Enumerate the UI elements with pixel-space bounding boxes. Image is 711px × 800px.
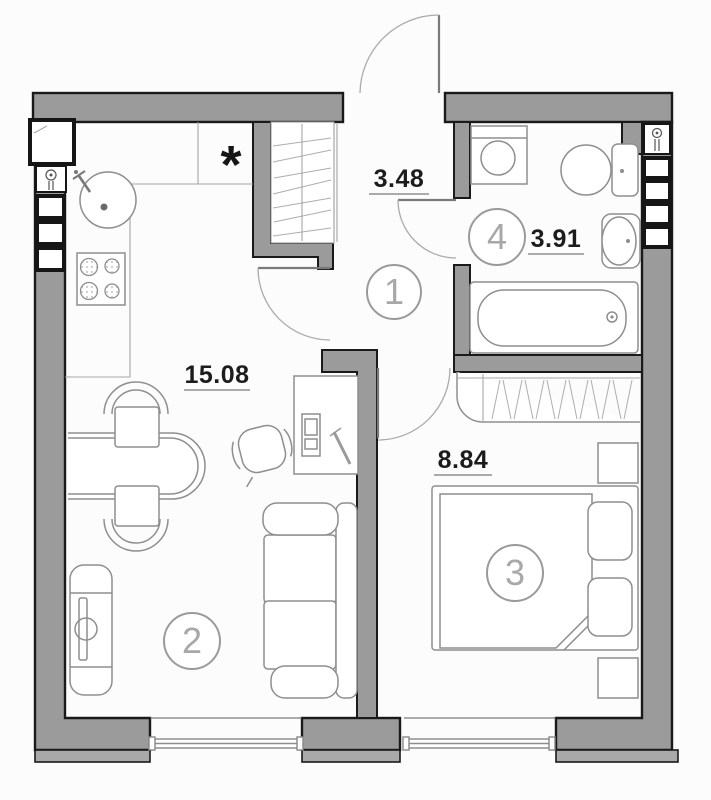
wall-sill-right (556, 750, 678, 762)
dining-chair-bottom-seat (115, 486, 159, 526)
bathroom-area-label: 3.91 (531, 225, 582, 253)
vent-shaft-right-1 (644, 158, 670, 178)
sofa-cushion-2 (264, 601, 336, 669)
window-right-cap-b (549, 737, 555, 750)
wall-bottom-center (302, 718, 400, 750)
vent-shaft-left-2 (37, 222, 64, 244)
floor-plan: * (0, 0, 711, 800)
stove-burner-1 (81, 259, 98, 276)
window-left-cap-b (297, 737, 303, 750)
kitchen-faucet-dot (74, 170, 78, 174)
tv-stand-icon (70, 565, 112, 695)
sofa-backrest (336, 503, 357, 698)
dining-chair-top-seat (115, 407, 159, 447)
sofa-cushion-1 (264, 535, 336, 603)
sofa-icon (263, 503, 357, 698)
vent-valve-right-dot (656, 132, 659, 135)
vent-box-large-icon (30, 120, 74, 164)
kitchen-sink-drain (101, 204, 108, 211)
vent-shaft-right-2 (644, 181, 670, 201)
vent-shaft-left-1 (37, 196, 64, 218)
living-room-area-label: 15.08 (184, 361, 249, 389)
bathroom-sink-faucet (626, 239, 630, 243)
stove-burner-4 (105, 284, 119, 298)
tv-icon (79, 598, 87, 660)
toilet-button (620, 169, 624, 173)
hallway-number: 1 (384, 271, 404, 312)
hallway-area-label: 3.48 (374, 165, 425, 193)
vent-shaft-right-3 (644, 204, 670, 224)
toilet-tank (612, 144, 638, 196)
wall-sill-center (302, 750, 400, 762)
living-room-number: 2 (182, 620, 202, 661)
toilet-icon (561, 145, 611, 195)
sofa-armrest-bottom (271, 666, 338, 698)
bathtub-drain-dot (610, 315, 613, 318)
bed-pillow-2 (588, 578, 632, 636)
bedroom-number: 3 (505, 552, 525, 593)
wall-bathtub-bottom (454, 355, 642, 372)
sofa-armrest-top (263, 503, 338, 535)
bathroom-sink-icon (602, 217, 636, 265)
vent-shaft-right-4 (644, 227, 670, 247)
wall-sill-left (35, 750, 150, 762)
floor-plan-drawing: * (0, 0, 711, 800)
stove-burner-2 (105, 259, 119, 273)
nightstand-bottom-icon (598, 658, 638, 698)
wall-bathroom-lower (454, 265, 470, 355)
wall-bathroom-upper (454, 122, 470, 198)
wall-top-right (445, 93, 672, 122)
kitchen-sink-icon (80, 172, 136, 228)
window-left-cap-a (149, 737, 155, 750)
gas-marker: * (220, 135, 241, 195)
wall-top-left (33, 93, 343, 122)
nightstand-top-icon (598, 443, 638, 483)
stove-burner-3 (81, 283, 98, 300)
vent-shaft-left-3 (37, 248, 64, 270)
bed-pillow-1 (588, 502, 632, 560)
vent-valve-left-dot (50, 174, 53, 177)
window-right-cap-a (403, 737, 409, 750)
bedroom-area-label: 8.84 (438, 446, 489, 474)
hall-closet (271, 122, 337, 243)
bathroom-number: 4 (487, 216, 507, 257)
